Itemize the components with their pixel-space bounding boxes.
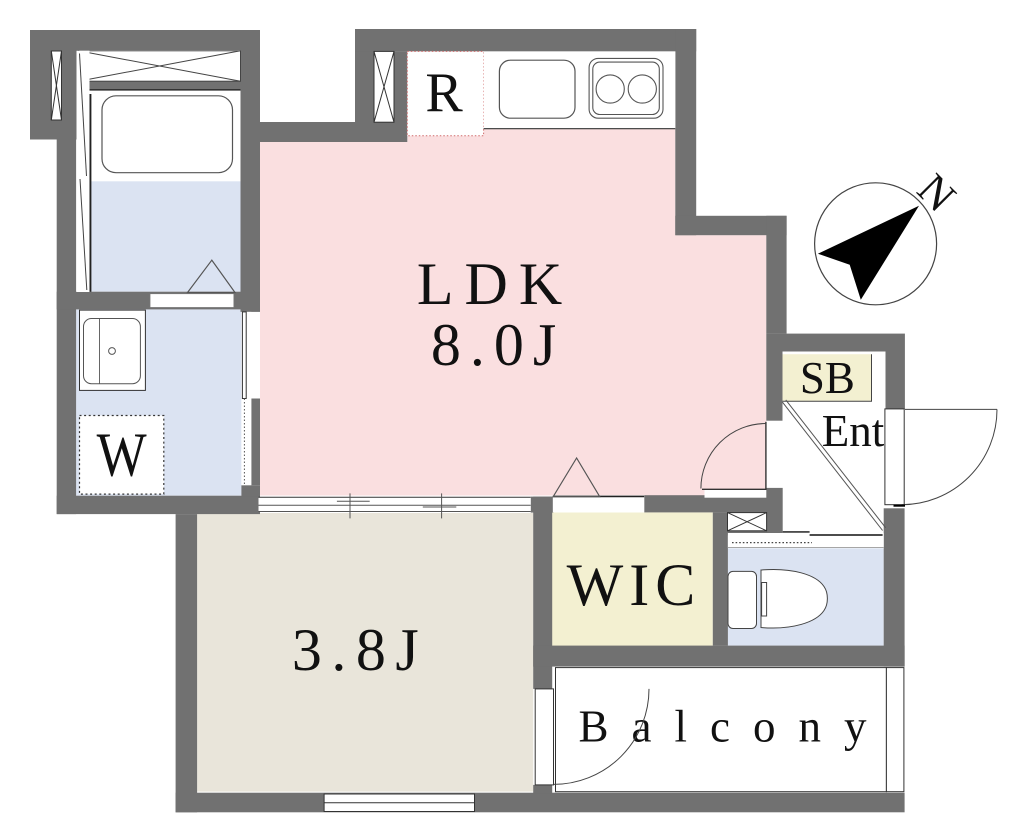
svg-text:3.8J: 3.8J <box>292 617 428 683</box>
svg-text:WIC: WIC <box>567 552 702 618</box>
svg-text:8.0J: 8.0J <box>431 312 565 378</box>
svg-text:LDK: LDK <box>417 251 573 317</box>
svg-text:Balcony: Balcony <box>579 702 890 752</box>
svg-text:SB: SB <box>800 353 855 403</box>
svg-text:W: W <box>97 422 147 490</box>
svg-text:Ent: Ent <box>822 406 885 456</box>
svg-text:R: R <box>425 62 463 124</box>
